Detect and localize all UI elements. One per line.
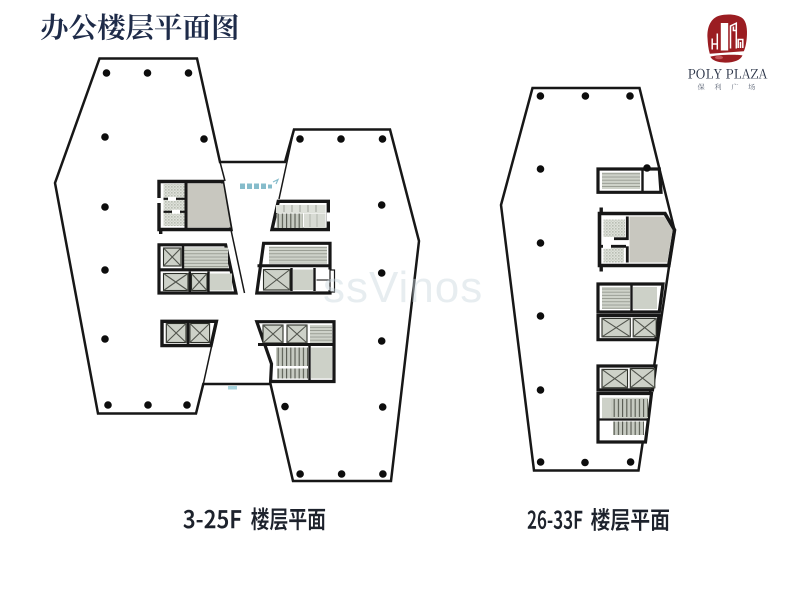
svg-text:ssVinos: ssVinos [323,263,483,312]
